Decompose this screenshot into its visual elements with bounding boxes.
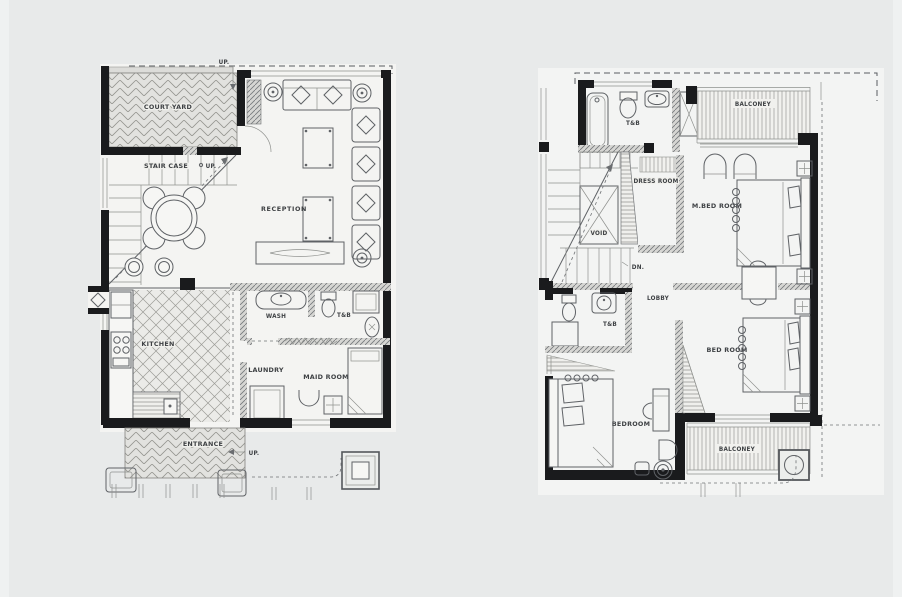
- label-toilet-bath-main: T&B: [626, 121, 640, 127]
- wall-hatched: [230, 283, 391, 291]
- label-balcony-bottom: BALCONEY: [719, 447, 756, 453]
- closet: [640, 157, 676, 172]
- dresser: [742, 267, 776, 299]
- label-down: DN.: [632, 265, 644, 271]
- label-stair-case: STAIR CASE: [144, 162, 188, 170]
- label-reception: RECEPTION: [261, 205, 307, 213]
- label-master-bed-room: M.BED ROOM: [692, 202, 742, 210]
- dress-room: DRESS ROOM: [633, 155, 684, 253]
- floor-plans-drawing: COURT YARD UP.: [0, 0, 902, 597]
- label-up-stair: UP.: [206, 164, 217, 170]
- label-bed-room: BED ROOM: [707, 346, 748, 354]
- ground-floor-plan: COURT YARD UP.: [88, 60, 396, 500]
- side-door-niche: [88, 286, 109, 314]
- step-ticks: [112, 484, 224, 498]
- planter: [779, 450, 809, 480]
- label-up-entrance: UP.: [249, 451, 260, 457]
- headboard: [801, 178, 810, 268]
- label-lobby: LOBBY: [647, 296, 670, 302]
- kitchen: KITCHEN: [101, 278, 230, 425]
- label-laundry: LAUNDRY: [248, 366, 284, 374]
- planter: [342, 452, 379, 489]
- walkway-dashed: [252, 458, 341, 477]
- court-yard: COURT YARD: [101, 66, 241, 155]
- label-bedroom: BEDROOM: [612, 420, 650, 428]
- headboard: [800, 316, 810, 394]
- label-void: VOID: [591, 231, 608, 237]
- label-maid-room: MAID ROOM: [303, 373, 349, 381]
- headboard: [549, 379, 558, 467]
- toilet-tank: [562, 295, 576, 303]
- label-entrance: ENTRANCE: [183, 440, 223, 448]
- label-dress-room: DRESS ROOM: [633, 179, 678, 185]
- label-toilet-bath: T&B: [337, 313, 351, 319]
- label-toilet-bath-small: T&B: [603, 322, 617, 328]
- dining-table: [151, 195, 197, 241]
- label-wash: WASH: [266, 314, 286, 320]
- label-kitchen: KITCHEN: [141, 340, 174, 348]
- floor-plans-screenshot: COURT YARD UP.: [0, 0, 902, 597]
- balcony-top: BALCONEY: [686, 86, 812, 147]
- second-floor-plan: T&B BALCONEY: [538, 68, 884, 497]
- label-up-top: UP.: [219, 60, 230, 66]
- label-court-yard: COURT YARD: [144, 103, 192, 111]
- label-balcony-top: BALCONEY: [735, 102, 772, 108]
- toilet-tank: [620, 92, 637, 100]
